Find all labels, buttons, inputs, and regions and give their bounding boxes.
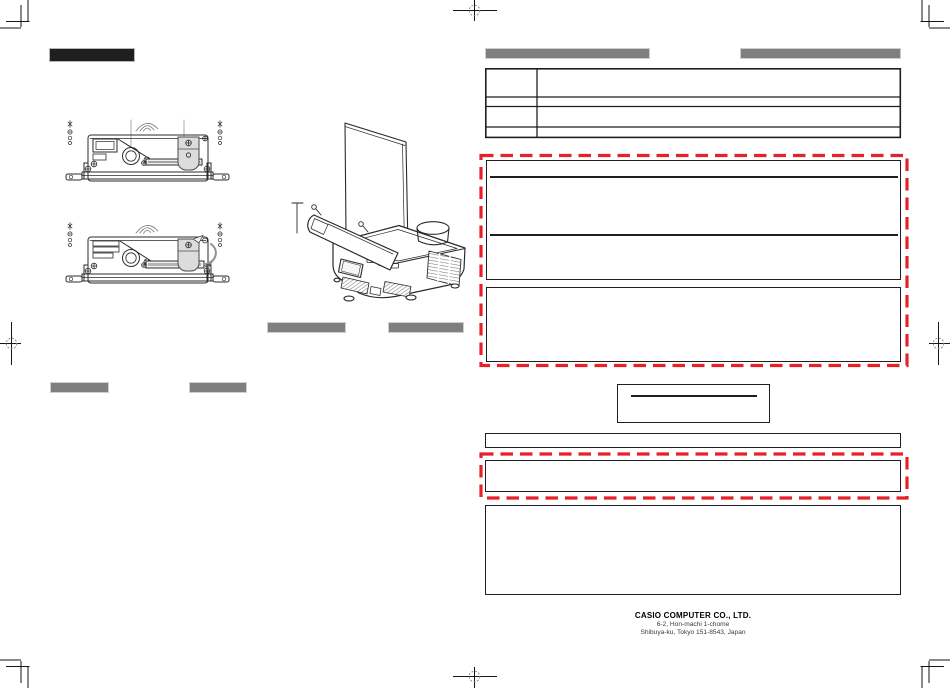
redacted-heading-bar-1 [267, 322, 346, 333]
redacted-heading-bar-right-1 [485, 48, 650, 59]
notice-box-top [486, 160, 901, 280]
footer-address-block: CASIO COMPUTER CO., LTD. 6-2, Hon-machi … [485, 611, 901, 636]
notice-rule-1 [490, 176, 898, 178]
insert-arrow-icon [206, 244, 216, 264]
figure-projector-isometric [283, 65, 468, 310]
lens-housing [417, 222, 449, 235]
fastener-stack-icon [218, 121, 222, 145]
company-address-line1: 6-2, Hon-machi 1-chome [485, 621, 901, 629]
highlighted-strip-box [485, 460, 901, 492]
redacted-heading-bar-2 [388, 322, 464, 333]
small-label-rule [631, 395, 757, 397]
center-trim-mark-bottom [450, 665, 499, 688]
notice-rule-2 [490, 234, 898, 236]
redacted-heading-bar-4 [189, 382, 247, 393]
redacted-heading-bar-right-2 [740, 48, 901, 59]
large-empty-box [485, 505, 901, 595]
redacted-heading-bar-3 [50, 382, 109, 393]
corner-trim-mark-top-right [920, 0, 950, 30]
empty-spec-table [485, 68, 902, 139]
figure-device-rear-view-2 [60, 220, 235, 294]
fastener-stack-icon [68, 121, 72, 145]
side-trim-mark-right [927, 321, 950, 366]
notice-box-bottom [486, 287, 901, 362]
fastener-stack-icon [218, 223, 222, 247]
company-address-line2: Shibuya-ku, Tokyo 151-8543, Japan [485, 629, 901, 637]
fastener-stack-icon [68, 223, 72, 247]
section-header-black-bar [49, 48, 135, 62]
manual-back-page: CASIO COMPUTER CO., LTD. 6-2, Hon-machi … [0, 0, 950, 688]
company-name: CASIO COMPUTER CO., LTD. [485, 611, 901, 620]
corner-trim-mark-bottom-right [920, 658, 950, 688]
side-trim-mark-left [0, 321, 23, 366]
corner-trim-mark-bottom-left [0, 658, 30, 688]
center-trim-mark-top [450, 0, 499, 23]
thin-strip-box [485, 433, 901, 448]
figure-device-rear-view-1 [60, 116, 235, 190]
corner-trim-mark-top-left [0, 0, 30, 30]
leader-line [292, 203, 303, 233]
small-label-box [617, 384, 770, 423]
